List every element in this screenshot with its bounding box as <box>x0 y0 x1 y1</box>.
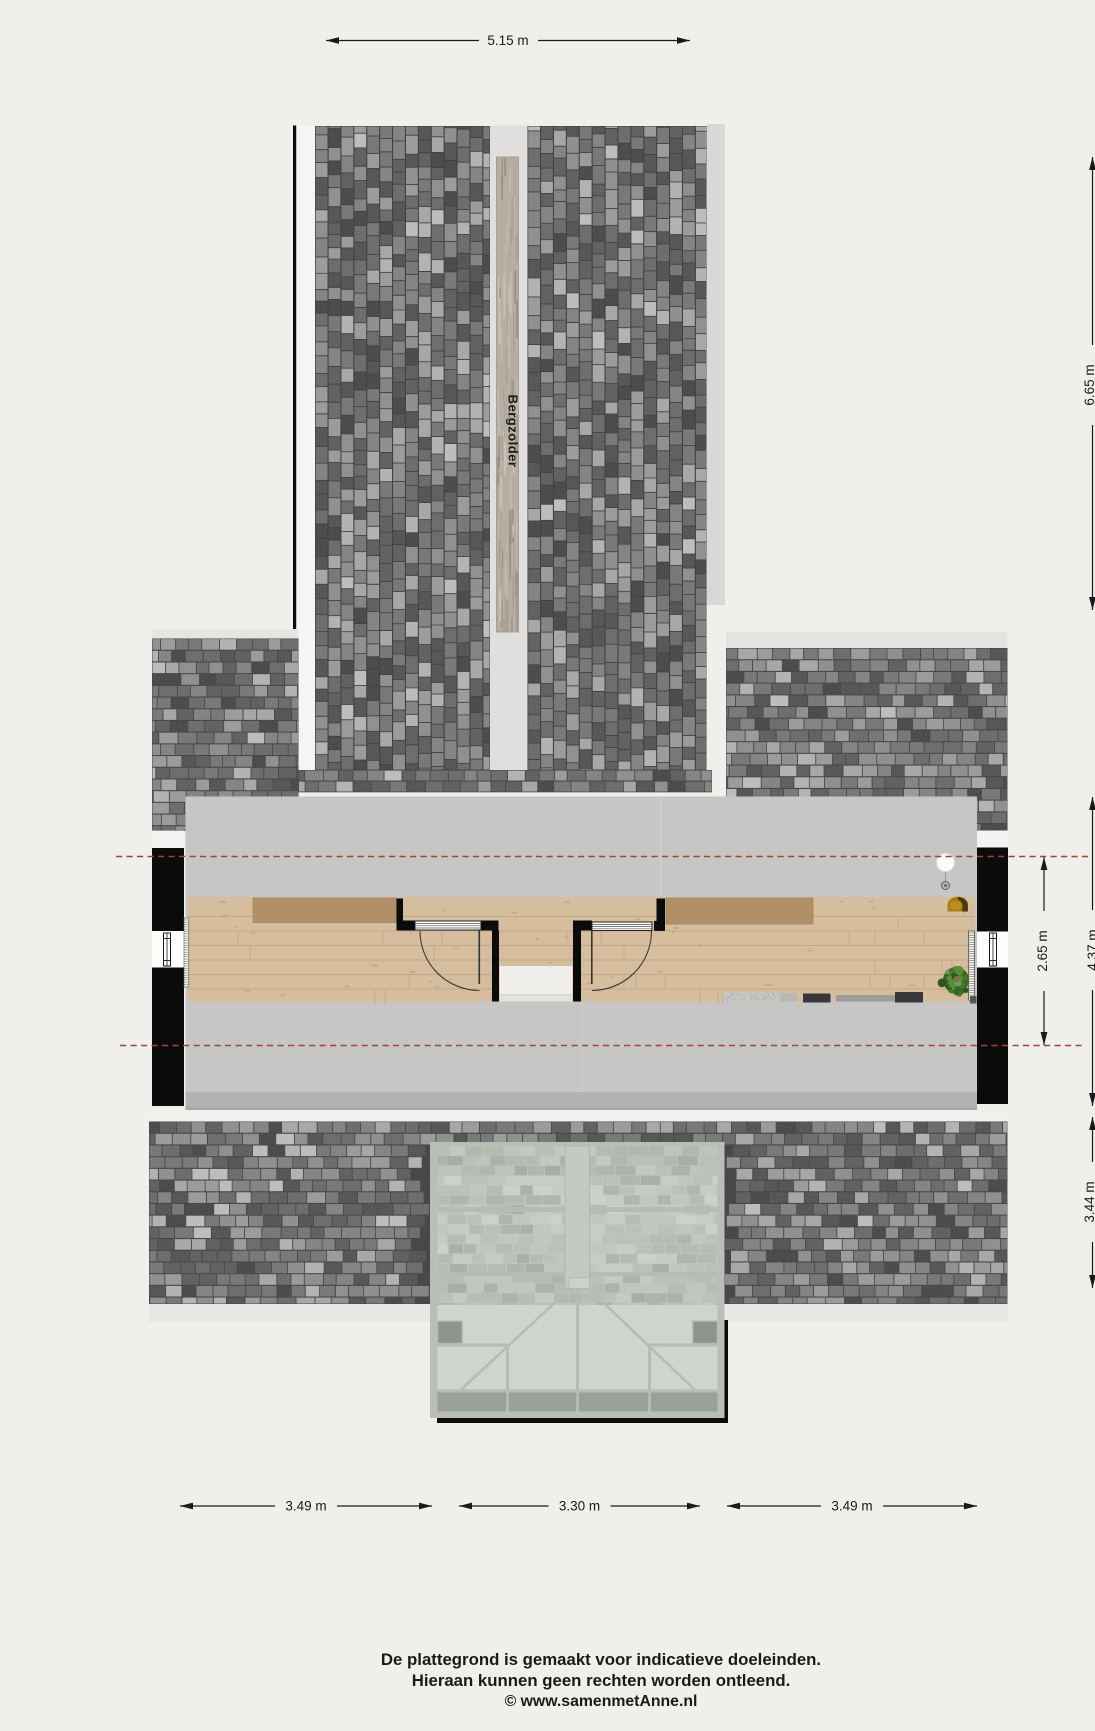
svg-text:Bergzolder: Bergzolder <box>506 395 521 468</box>
svg-text:3.44 m: 3.44 m <box>1082 1181 1095 1222</box>
svg-text:Hieraan kunnen geen rechten wo: Hieraan kunnen geen rechten worden ontle… <box>412 1671 791 1690</box>
svg-text:2.65 m: 2.65 m <box>1035 930 1050 971</box>
svg-text:3.49 m: 3.49 m <box>831 1499 872 1514</box>
svg-text:3.49 m: 3.49 m <box>285 1499 326 1514</box>
svg-text:3.30 m: 3.30 m <box>559 1499 600 1514</box>
svg-text:De plattegrond is gemaakt voor: De plattegrond is gemaakt voor indicatie… <box>381 1650 821 1669</box>
svg-text:5.15 m: 5.15 m <box>487 33 528 48</box>
svg-text:© www.samenmetAnne.nl: © www.samenmetAnne.nl <box>505 1693 698 1710</box>
svg-text:4.37 m: 4.37 m <box>1085 929 1095 970</box>
svg-text:6.65 m: 6.65 m <box>1082 364 1095 405</box>
